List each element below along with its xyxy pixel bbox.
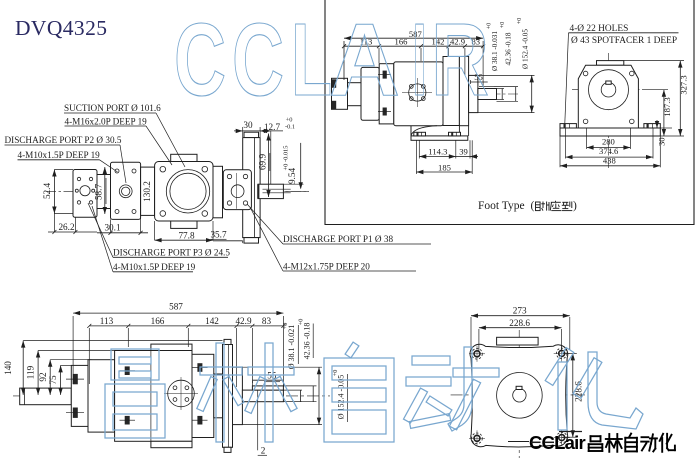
svg-text:273: 273 bbox=[513, 305, 527, 315]
svg-text:12.7: 12.7 bbox=[264, 122, 280, 132]
svg-text:Ø 152.4 -0.05: Ø 152.4 -0.05 bbox=[337, 375, 346, 419]
svg-text:30: 30 bbox=[243, 120, 253, 130]
svg-text:R: R bbox=[431, 2, 489, 117]
svg-text:DISCHARGE PORT P1 Ø 38: DISCHARGE PORT P1 Ø 38 bbox=[283, 234, 393, 244]
svg-text:30: 30 bbox=[657, 137, 667, 146]
svg-text:4-M12x1.75P DEEP 20: 4-M12x1.75P DEEP 20 bbox=[283, 261, 370, 271]
svg-text:113: 113 bbox=[100, 316, 114, 326]
svg-text:+0: +0 bbox=[517, 18, 523, 24]
svg-text:42.9: 42.9 bbox=[235, 316, 251, 326]
svg-text:A: A bbox=[329, 2, 400, 117]
svg-text:119: 119 bbox=[26, 365, 36, 379]
svg-text:+0: +0 bbox=[286, 116, 293, 123]
svg-text:4-M10x1.5P DEEP 19: 4-M10x1.5P DEEP 19 bbox=[18, 150, 101, 160]
svg-text:83: 83 bbox=[262, 316, 272, 326]
svg-text:228.6: 228.6 bbox=[509, 318, 530, 328]
svg-text:327.3: 327.3 bbox=[679, 75, 689, 94]
svg-text:185: 185 bbox=[438, 163, 451, 173]
svg-text:L: L bbox=[291, 2, 332, 117]
svg-text:): ) bbox=[573, 200, 577, 212]
svg-text:Ø 152.4 -0.05: Ø 152.4 -0.05 bbox=[522, 29, 530, 69]
svg-text:114.3: 114.3 bbox=[428, 147, 447, 157]
svg-text:Ø 38.1 -0.031: Ø 38.1 -0.031 bbox=[491, 31, 499, 71]
svg-text:39: 39 bbox=[459, 147, 468, 157]
svg-text:+0 -0.015: +0 -0.015 bbox=[282, 146, 289, 171]
svg-text:2: 2 bbox=[261, 446, 266, 456]
svg-text:92: 92 bbox=[38, 372, 48, 382]
svg-text:438: 438 bbox=[603, 155, 616, 165]
svg-text:Foot Type: Foot Type bbox=[478, 200, 525, 212]
svg-text:35.7: 35.7 bbox=[210, 230, 226, 240]
svg-text:30.1: 30.1 bbox=[104, 223, 120, 233]
svg-text:58.7: 58.7 bbox=[94, 184, 104, 200]
svg-text:Ø 38.1 -0.021: Ø 38.1 -0.021 bbox=[287, 325, 296, 369]
svg-text:75: 75 bbox=[48, 375, 58, 385]
svg-text:-0.1: -0.1 bbox=[285, 123, 295, 130]
svg-text:+0: +0 bbox=[500, 22, 506, 28]
svg-text:SUCTION PORT Ø 101.6: SUCTION PORT Ø 101.6 bbox=[64, 103, 161, 113]
svg-text:Ø 43 SPOTFACER 1 DEEP: Ø 43 SPOTFACER 1 DEEP bbox=[571, 36, 677, 46]
svg-text:280: 280 bbox=[602, 137, 615, 147]
svg-text:140: 140 bbox=[3, 361, 13, 375]
svg-text:I: I bbox=[412, 2, 427, 117]
svg-text:+0: +0 bbox=[282, 323, 289, 330]
svg-text:DISCHARGE PORT P2 Ø 30.5: DISCHARGE PORT P2 Ø 30.5 bbox=[5, 135, 122, 145]
svg-text:+0: +0 bbox=[332, 370, 339, 377]
svg-text:(: ( bbox=[531, 200, 535, 212]
svg-text:4-M10x1.5P DEEP 19: 4-M10x1.5P DEEP 19 bbox=[113, 262, 196, 272]
svg-text:130.2: 130.2 bbox=[142, 181, 152, 202]
svg-text:C: C bbox=[232, 2, 284, 117]
svg-text:52.4: 52.4 bbox=[42, 183, 52, 199]
svg-text:DISCHARGE PORT P3 Ø 24.5: DISCHARGE PORT P3 Ø 24.5 bbox=[113, 248, 230, 258]
svg-text:42.36 -0.18: 42.36 -0.18 bbox=[505, 32, 513, 65]
svg-text:+0: +0 bbox=[298, 319, 305, 326]
svg-text:69.9: 69.9 bbox=[258, 154, 268, 170]
svg-text:26.2: 26.2 bbox=[58, 222, 74, 232]
svg-text:42.36 -0.18: 42.36 -0.18 bbox=[303, 323, 312, 360]
svg-text:142: 142 bbox=[205, 316, 219, 326]
svg-text:187.3: 187.3 bbox=[662, 97, 672, 116]
svg-text:C: C bbox=[174, 2, 226, 117]
svg-text:4-M16x2.0P DEEP 19: 4-M16x2.0P DEEP 19 bbox=[65, 116, 148, 126]
svg-text:77.8: 77.8 bbox=[178, 230, 194, 240]
svg-text:166: 166 bbox=[151, 316, 165, 326]
svg-text:587: 587 bbox=[169, 302, 183, 312]
svg-text:DVQ4325: DVQ4325 bbox=[15, 16, 107, 40]
